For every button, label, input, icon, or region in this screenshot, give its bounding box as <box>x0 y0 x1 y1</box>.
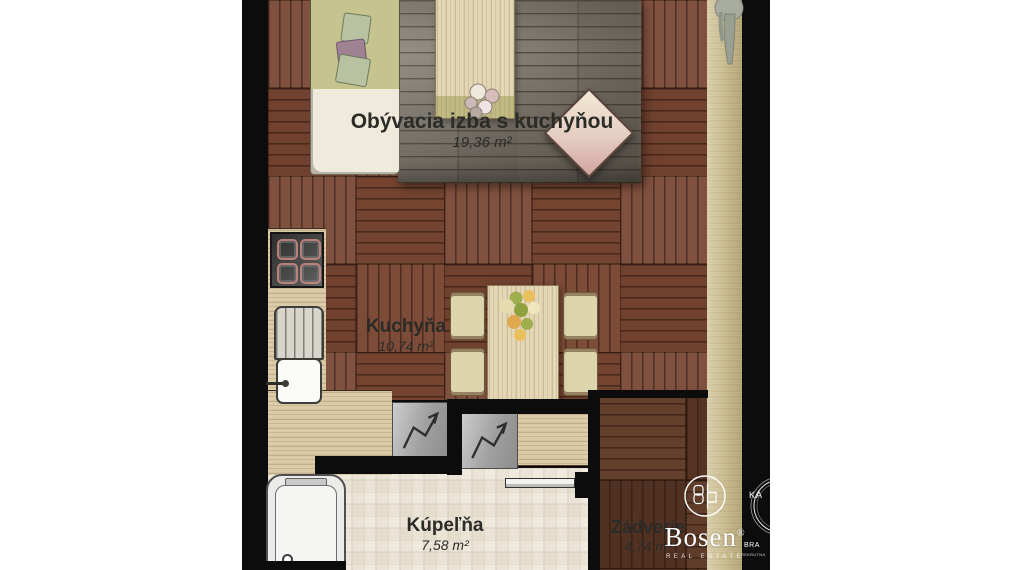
room-label-living: Obývacia izba s kuchyňou 19,36 m² <box>332 110 632 151</box>
sink-drainboard <box>274 306 324 360</box>
kitchen-sink <box>274 306 322 398</box>
room-area: 10,74 m² <box>326 338 486 354</box>
room-area: 19,36 m² <box>332 134 632 151</box>
coffee-sideboard-table <box>435 0 515 119</box>
cooktop <box>270 232 324 288</box>
room-name: Kuchyňa <box>326 316 486 338</box>
plan-canvas: Obývacia izba s kuchyňou 19,36 m² Kuchyň… <box>242 0 770 570</box>
burner-icon <box>300 263 321 284</box>
bathroom-door <box>505 478 575 488</box>
bathtub <box>266 474 346 570</box>
faucet-knob-icon <box>282 380 289 387</box>
dining-chair <box>563 292 598 340</box>
sofa-pillow <box>335 53 372 87</box>
zigzag-arrow-icon <box>393 403 448 458</box>
bosen-wordmark-text: Bosen <box>664 522 737 552</box>
partner-text-fragment: BRA <box>744 542 760 549</box>
hall-cabinet <box>518 412 590 466</box>
appliance-washer <box>392 402 449 459</box>
bosen-monogram-icon <box>679 470 731 522</box>
dining-chair <box>563 348 598 396</box>
room-name: Kúpeľňa <box>365 515 525 537</box>
wall <box>447 399 462 475</box>
appliance-dryer <box>460 412 518 469</box>
burner-icon <box>300 239 321 260</box>
wall <box>447 399 600 414</box>
door-jamb <box>575 472 589 498</box>
burner-icon <box>277 263 298 284</box>
room-area: 7,58 m² <box>365 537 525 553</box>
floor-plan-image: Obývacia izba s kuchyňou 19,36 m² Kuchyň… <box>0 0 1011 570</box>
burner-icon <box>277 239 298 260</box>
wall <box>315 456 448 474</box>
dining-table <box>487 285 559 404</box>
flower-decor-icon <box>436 0 514 118</box>
wall <box>588 390 708 398</box>
room-name: Obývacia izba s kuchyňou <box>332 110 632 134</box>
partner-logo: KA BRA REKRUTNA <box>740 462 770 568</box>
room-label-kitchen: Kuchyňa 10,74 m² <box>326 316 486 354</box>
hanging-plant-icon <box>705 0 745 75</box>
dining-chair <box>450 348 485 396</box>
room-label-bathroom: Kúpeľňa 7,58 m² <box>365 515 525 553</box>
zigzag-arrow-icon <box>461 413 517 468</box>
partner-text-fragment: REKRUTNA <box>741 552 765 557</box>
wall <box>242 561 346 570</box>
partner-text-fragment: KA <box>749 490 763 500</box>
table-decor-icon <box>488 286 558 403</box>
